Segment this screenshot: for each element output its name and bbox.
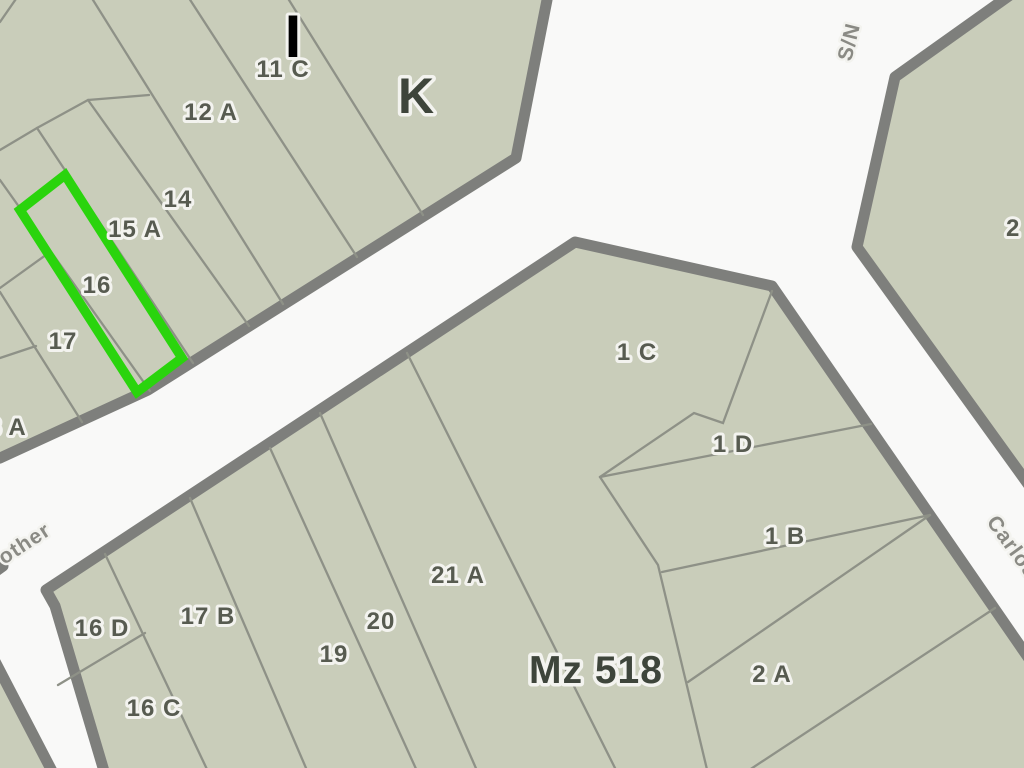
block-label-mz518: Mz 518 [529, 649, 663, 692]
parcel-label-2a: 2 A [752, 661, 791, 688]
block-letter-K: K [398, 68, 434, 124]
parcel-label-1c: 1 C [617, 339, 657, 366]
parcel-label-1d: 1 D [713, 431, 753, 458]
parcel-label-8a: 8 A [0, 414, 27, 441]
parcel-label-16d: 16 D [75, 615, 130, 642]
parcel-label-17: 17 [49, 328, 78, 355]
cadastral-map[interactable]: other S/N Carlos I 11 C 12 A 14 15 A 16 … [0, 0, 1024, 768]
parcel-label-15a: 15 A [108, 216, 162, 243]
parcel-label-16: 16 [83, 272, 112, 299]
parcel-label-20: 20 [367, 608, 396, 635]
parcel-label-19: 19 [320, 641, 349, 668]
parcel-label-2a-edge: 2 A [1006, 215, 1024, 242]
parcel-label-14: 14 [164, 186, 193, 213]
parcel-label-21a: 21 A [431, 562, 485, 589]
parcel-label-12a: 12 A [184, 99, 238, 126]
parcel-label-1b: 1 B [765, 523, 805, 550]
parcel-label-17b: 17 B [181, 603, 236, 630]
parcel-label-16c: 16 C [127, 695, 182, 722]
parcel-label-11c: 11 C [256, 56, 309, 83]
